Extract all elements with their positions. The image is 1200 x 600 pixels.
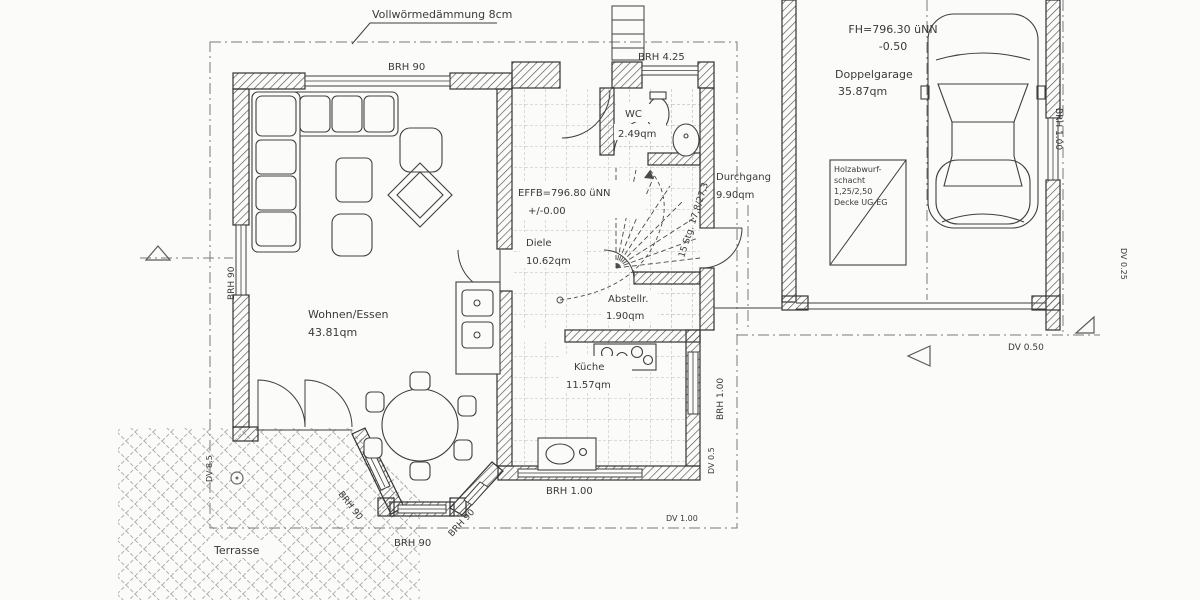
room-wc-name: WC: [625, 109, 642, 120]
chair: [410, 372, 430, 390]
room-abstell-name: Abstellr.: [608, 294, 648, 305]
floor-plan-drawing: Vollwörmedämmung 8cm BRH 90 BRH 4.25 FH=…: [0, 0, 1200, 600]
chute-line2: schacht: [834, 176, 865, 185]
dim-dv100: DV 1.00: [666, 514, 698, 523]
room-kueche-name: Küche: [574, 362, 604, 373]
room-durchgang-name: Durchgang: [716, 172, 771, 183]
floor-plan-canvas: Vollwörmedämmung 8cm BRH 90 BRH 4.25 FH=…: [0, 0, 1200, 600]
chair: [458, 396, 476, 416]
chair: [364, 438, 382, 458]
garage-right-wall-top: [1046, 0, 1060, 118]
triangle-marker-bottom: [908, 346, 930, 366]
dim-dv050-bottom: DV 0.50: [1008, 343, 1044, 353]
insulation-note: Vollwörmedämmung 8cm: [372, 8, 512, 21]
room-kueche-area: 11.57qm: [566, 380, 611, 391]
chair: [410, 462, 430, 480]
coffee-table: [336, 158, 372, 202]
dim-dv05: DV 0.5: [707, 447, 716, 474]
dim-brh100-kitchen: BRH 1.00: [716, 378, 726, 420]
garage-left-wall: [782, 0, 796, 302]
chute-line1: Holzabwurf-: [834, 165, 882, 174]
dim-dv85-terrace: DV 8.5: [205, 455, 214, 482]
armchair-2: [400, 128, 442, 172]
room-wc-area: 2.49qm: [618, 129, 656, 140]
room-diele-name: Diele: [526, 238, 552, 249]
level-fh: FH=796.30 üNN: [848, 23, 937, 36]
room-diele-area: 10.62qm: [526, 256, 571, 267]
room-terrasse-name: Terrasse: [213, 544, 260, 557]
wash-basin: [673, 124, 699, 156]
room-durchgang-area: 9.90qm: [716, 190, 754, 201]
chute-line4: Decke UG-EG: [834, 198, 888, 207]
dim-brh100-bottom: BRH 1.00: [546, 486, 593, 497]
chair: [454, 440, 472, 460]
dim-brh425-top: BRH 4.25: [638, 52, 685, 63]
room-abstell-area: 1.90qm: [606, 311, 644, 322]
triangle-marker-right: [1076, 317, 1094, 333]
living-furniture: [252, 92, 476, 480]
chair: [366, 392, 384, 412]
garage-content: [830, 14, 1045, 265]
room-wohnen-name: Wohnen/Essen: [308, 308, 389, 321]
chute-line3: 1,25/2,50: [834, 187, 872, 196]
room-garage-name: Doppelgarage: [835, 68, 913, 81]
garage-door: [714, 303, 1046, 309]
dim-brh90-left: BRH 90: [227, 266, 237, 300]
dim-brh90-top: BRH 90: [388, 62, 425, 73]
armchair-1: [332, 214, 372, 256]
terrace-door-left: [258, 380, 305, 427]
level-fh-value: -0.50: [879, 40, 907, 53]
room-wohnen-area: 43.81qm: [308, 326, 357, 339]
room-garage-area: 35.87qm: [838, 85, 887, 98]
dim-brh90-bay-bottom: BRH 90: [394, 538, 431, 549]
terrace-door-right: [305, 380, 352, 427]
car: [921, 14, 1045, 228]
level-effb: EFFB=796.80 üNN: [518, 188, 611, 199]
dim-brh100-garage: BRH 1.00: [1053, 108, 1063, 150]
dim-dv025-garage: DV 0.25: [1119, 248, 1128, 280]
insulation-leader: [352, 23, 497, 44]
dining-table: [382, 389, 458, 461]
level-effb-value: +/-0.00: [528, 206, 566, 217]
door-entrance: [702, 228, 742, 268]
